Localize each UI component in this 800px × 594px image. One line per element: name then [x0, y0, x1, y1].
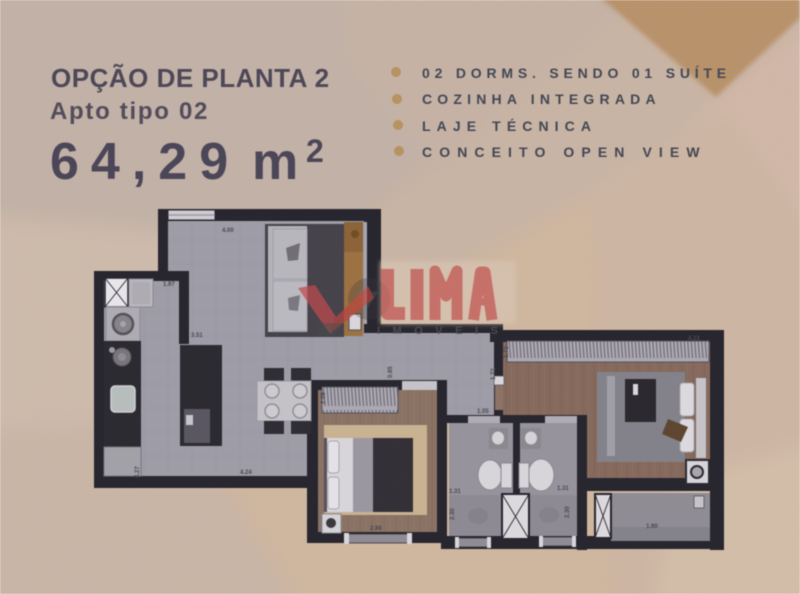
svg-text:Apto tipo 02: Apto tipo 02	[50, 98, 209, 125]
svg-text:1.97: 1.97	[163, 282, 175, 288]
svg-text:2.30: 2.30	[450, 508, 456, 520]
svg-text:4.23: 4.23	[688, 336, 700, 342]
svg-text:IMÓVEIS: IMÓVEIS	[377, 324, 510, 337]
svg-text:4.24: 4.24	[240, 470, 252, 476]
svg-text:OPÇÃO DE PLANTA 2: OPÇÃO DE PLANTA 2	[51, 63, 330, 93]
svg-text:1.72: 1.72	[504, 346, 510, 358]
svg-text:1.90: 1.90	[646, 524, 658, 530]
svg-text:3.51: 3.51	[191, 333, 203, 339]
svg-text:4.27: 4.27	[135, 466, 141, 478]
svg-text:02 DORMS. SENDO 01 SUÍTE: 02 DORMS. SENDO 01 SUÍTE	[422, 65, 731, 81]
svg-text:2.86: 2.86	[370, 526, 382, 532]
svg-text:LAJE TÉCNICA: LAJE TÉCNICA	[422, 118, 597, 134]
svg-text:2.09: 2.09	[321, 392, 327, 404]
svg-text:1.05: 1.05	[477, 409, 489, 415]
svg-text:m: m	[252, 133, 298, 191]
svg-text:1.72: 1.72	[491, 368, 497, 380]
svg-text:1.31: 1.31	[557, 486, 569, 492]
svg-text:CONCEITO OPEN VIEW: CONCEITO OPEN VIEW	[422, 144, 707, 160]
svg-text:0.85: 0.85	[388, 366, 394, 378]
svg-text:4.00: 4.00	[222, 228, 234, 234]
svg-text:1.31: 1.31	[449, 489, 461, 495]
svg-text:2.30: 2.30	[565, 506, 571, 518]
svg-text:64,29: 64,29	[50, 133, 240, 191]
svg-text:COZINHA INTEGRADA: COZINHA INTEGRADA	[422, 91, 661, 107]
svg-text:2: 2	[306, 133, 324, 169]
